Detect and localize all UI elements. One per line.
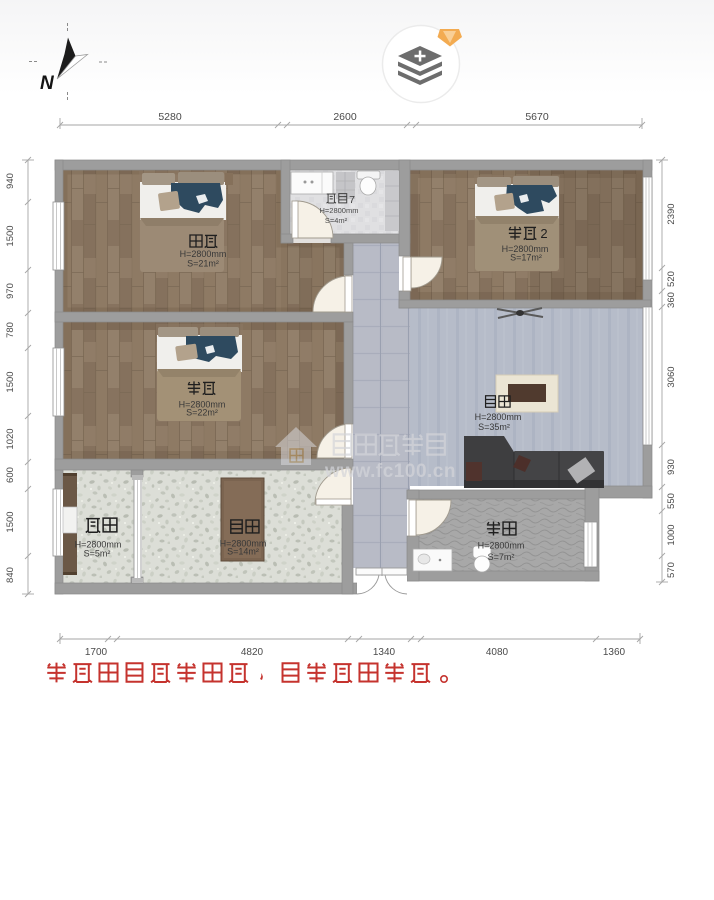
svg-text:2600: 2600: [333, 111, 357, 123]
svg-text:570: 570: [666, 562, 677, 578]
svg-text:520: 520: [666, 271, 677, 287]
svg-text:1500: 1500: [5, 371, 16, 392]
svg-text:H=2800mm: H=2800mm: [478, 541, 525, 551]
svg-text:S=4m²: S=4m²: [325, 216, 348, 225]
svg-text:S=5m²: S=5m²: [84, 549, 111, 559]
svg-text:1500: 1500: [5, 511, 16, 532]
svg-text:3060: 3060: [666, 366, 677, 387]
svg-text:S=21m²: S=21m²: [187, 259, 219, 269]
svg-text:840: 840: [5, 567, 16, 583]
svg-text:H=2800mm: H=2800mm: [320, 206, 359, 215]
svg-text:780: 780: [5, 322, 16, 338]
svg-text:1360: 1360: [603, 647, 626, 658]
svg-text:970: 970: [5, 283, 16, 299]
svg-text:1500: 1500: [5, 225, 16, 246]
svg-text:www.fc100.cn: www.fc100.cn: [324, 461, 456, 482]
svg-text:N: N: [40, 73, 55, 94]
svg-text:600: 600: [5, 467, 16, 483]
svg-text:1020: 1020: [5, 428, 16, 449]
svg-text:2: 2: [540, 226, 547, 241]
svg-text:2390: 2390: [666, 203, 677, 224]
svg-text:S=17m²: S=17m²: [510, 253, 542, 263]
svg-text:5280: 5280: [158, 111, 182, 123]
svg-text:1340: 1340: [373, 647, 396, 658]
svg-text:7: 7: [349, 194, 355, 206]
svg-text:930: 930: [666, 459, 677, 475]
svg-text:5670: 5670: [525, 111, 549, 123]
svg-text:4820: 4820: [241, 647, 264, 658]
svg-text:S=14m²: S=14m²: [227, 547, 259, 557]
svg-text:H=2800mm: H=2800mm: [475, 412, 522, 422]
svg-text:1000: 1000: [666, 524, 677, 545]
svg-text:360: 360: [666, 292, 677, 308]
svg-text:H=2800mm: H=2800mm: [180, 249, 227, 259]
svg-text:1700: 1700: [85, 647, 108, 658]
svg-text:940: 940: [5, 173, 16, 189]
svg-text:550: 550: [666, 493, 677, 509]
svg-text:S=7m²: S=7m²: [488, 552, 515, 562]
svg-text:S=35m²: S=35m²: [478, 422, 510, 432]
svg-text:4080: 4080: [486, 647, 509, 658]
svg-text:S=22m²: S=22m²: [186, 408, 218, 418]
